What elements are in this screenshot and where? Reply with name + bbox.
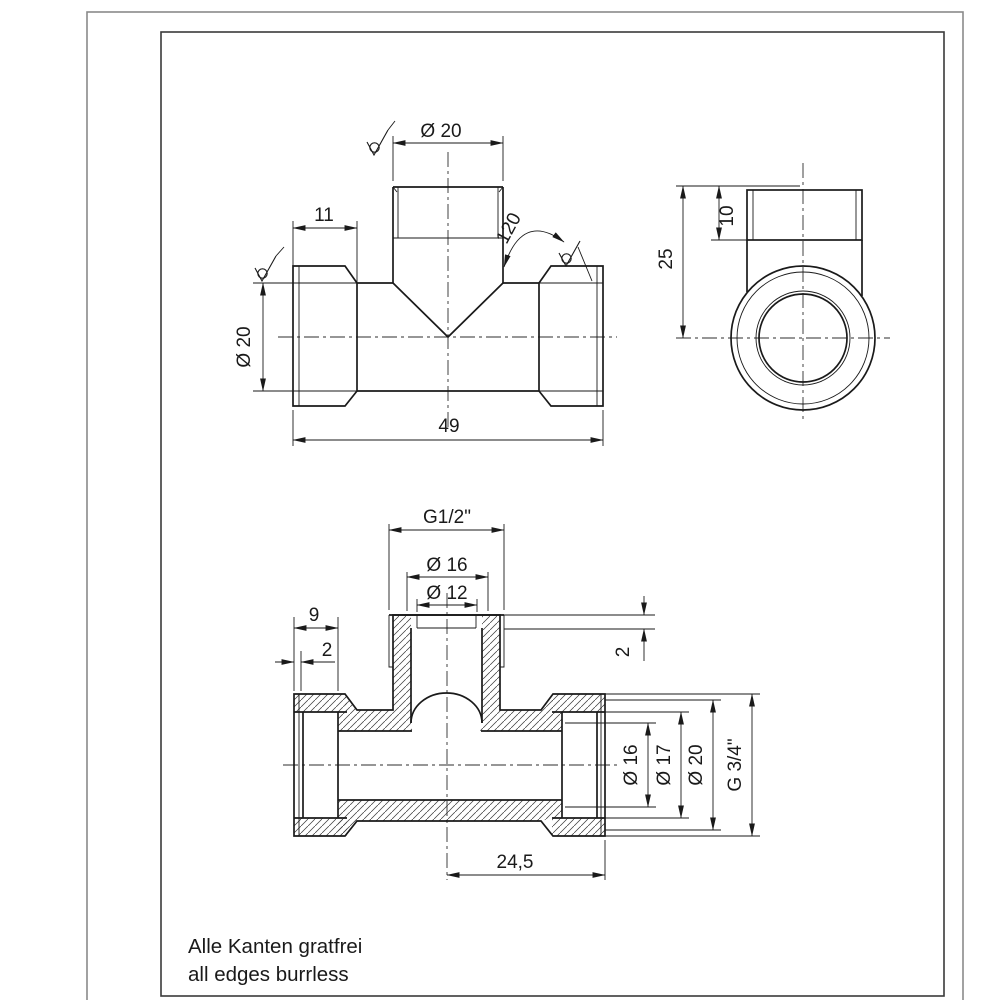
dim-text-counterbore: Ø 16 — [426, 555, 467, 576]
dim-text-bore-17: Ø 17 — [654, 744, 675, 785]
dim-text-overall-length: 49 — [438, 416, 459, 437]
dim-text-branch-bore: Ø 12 — [426, 583, 467, 604]
note-german: Alle Kanten gratfrei — [188, 935, 362, 958]
dim-text-relief-right: 2 — [613, 647, 634, 658]
dim-text-branch-height: 25 — [656, 248, 677, 269]
dim-text-thread-depth: 9 — [309, 605, 320, 626]
note-english: all edges burrless — [188, 963, 349, 986]
drawing-page: Ø 20 11 Ø 20 49 120 — [0, 0, 1000, 1000]
technical-drawing: Ø 20 11 Ø 20 49 120 — [0, 0, 1000, 1000]
dim-text-relief-left: 2 — [322, 640, 333, 661]
dim-text-body-diameter: Ø 20 — [234, 326, 255, 367]
dim-text-thread-length: 11 — [314, 205, 334, 226]
dim-text-side-thread-length: 10 — [717, 205, 738, 226]
dim-text-branch-thread: G1/2" — [423, 507, 471, 528]
dim-text-bore-16: Ø 16 — [621, 744, 642, 785]
page-background — [0, 0, 1000, 1000]
dim-text-branch-diameter: Ø 20 — [420, 121, 461, 142]
dim-text-end-thread: G 3/4" — [725, 738, 746, 791]
dim-text-outer-20: Ø 20 — [686, 744, 707, 785]
dim-text-end-length: 24,5 — [497, 852, 534, 873]
